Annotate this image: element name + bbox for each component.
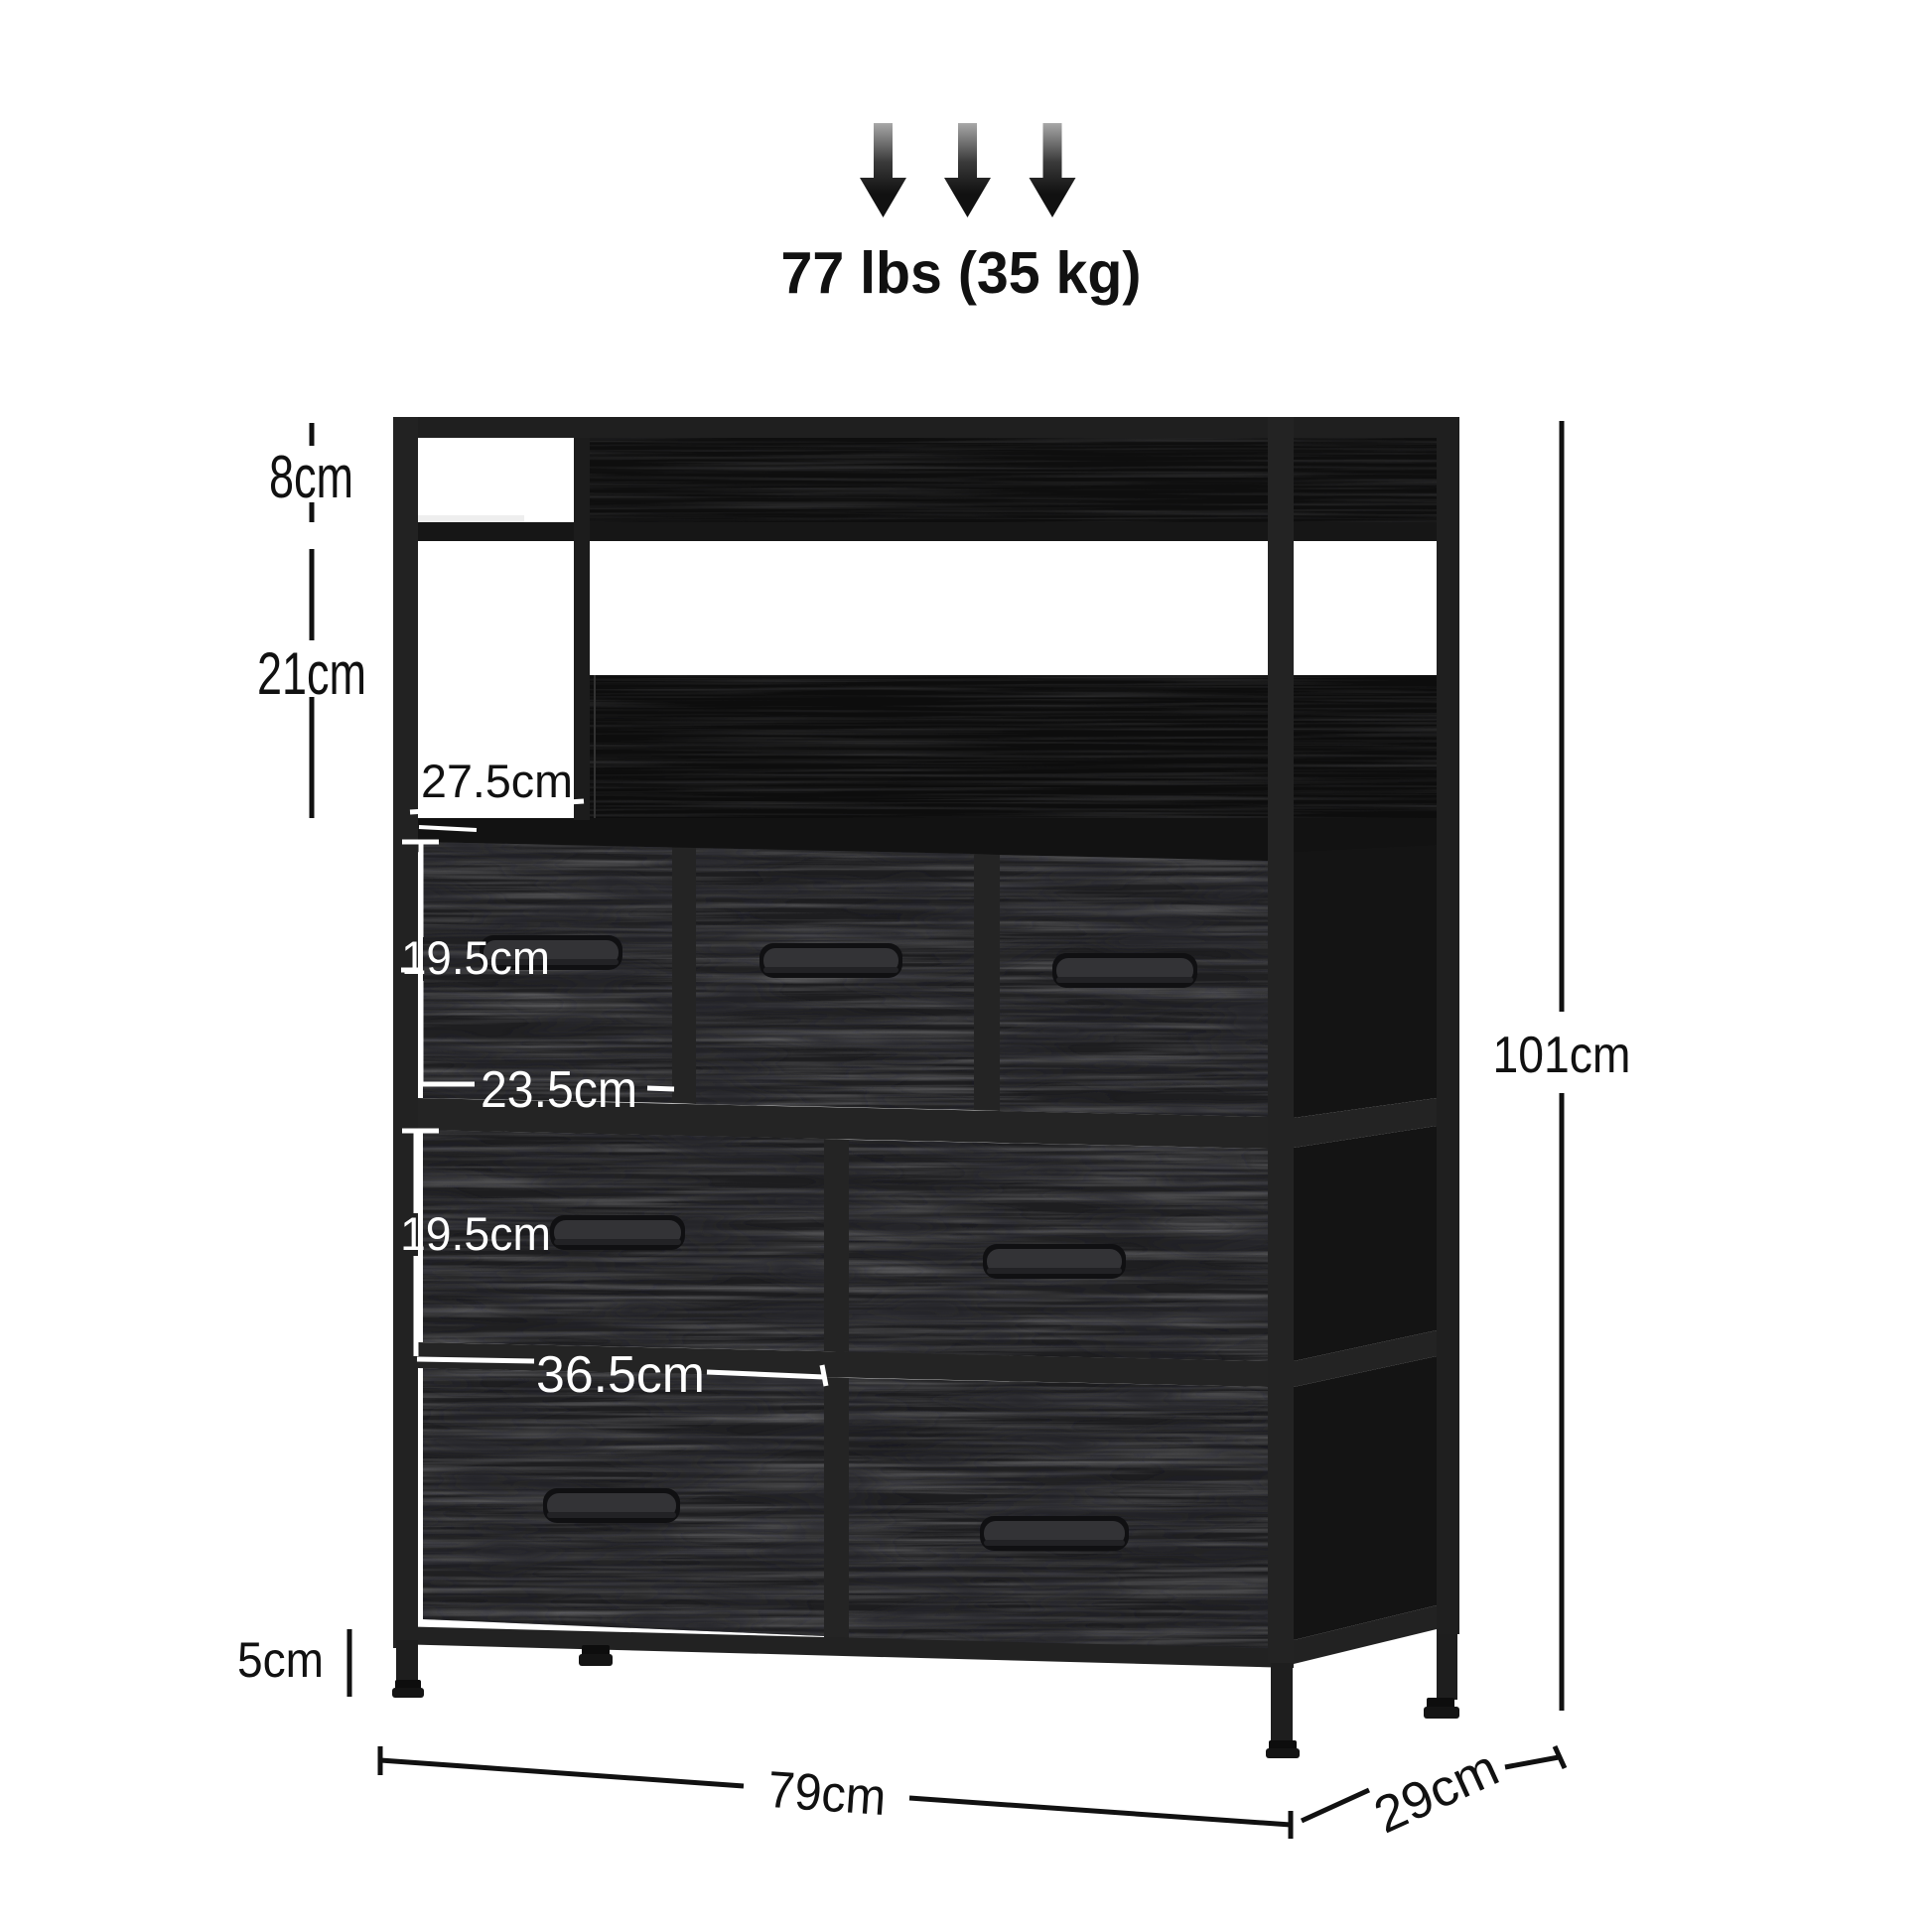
svg-text:77 lbs (35 kg): 77 lbs (35 kg) [781,240,1142,306]
svg-text:19.5cm: 19.5cm [400,1207,551,1260]
svg-text:36.5cm: 36.5cm [536,1346,705,1404]
svg-text:101cm: 101cm [1493,1027,1631,1084]
svg-text:21cm: 21cm [257,640,366,707]
svg-text:27.5cm: 27.5cm [421,755,573,807]
svg-text:5cm: 5cm [237,1632,324,1688]
svg-text:8cm: 8cm [269,444,353,510]
svg-text:23.5cm: 23.5cm [481,1061,637,1119]
svg-text:19.5cm: 19.5cm [401,931,550,984]
svg-text:79cm: 79cm [766,1761,889,1827]
